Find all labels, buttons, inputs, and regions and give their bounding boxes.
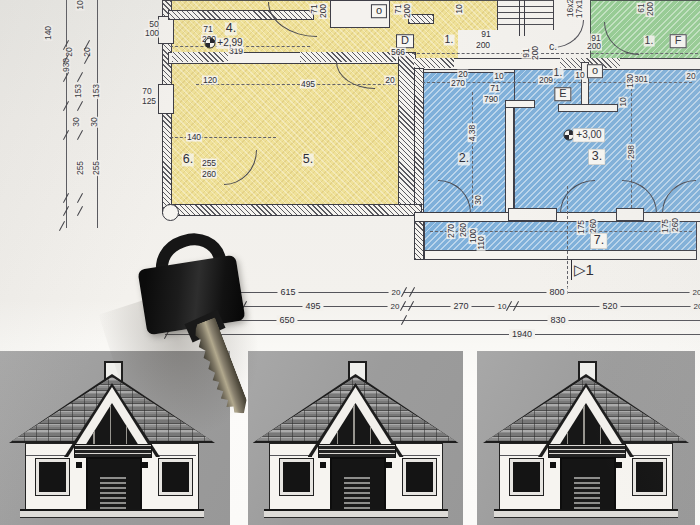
plan-label: 175 xyxy=(577,219,586,235)
plan-label: 200 xyxy=(403,3,412,19)
wall-stub-top xyxy=(408,14,434,24)
dimension-label: 20 xyxy=(691,302,700,311)
lamp-right xyxy=(616,462,622,468)
plan-label: o xyxy=(371,4,387,18)
chain-dim-label: 10 xyxy=(76,0,85,11)
window-right xyxy=(403,459,436,495)
lamp-left xyxy=(320,462,326,468)
plan-label: 200 xyxy=(475,41,491,50)
plan-label: 120 xyxy=(202,76,218,85)
chain-dim-label: 255 xyxy=(92,160,101,176)
section-marker-glyph: ▷ xyxy=(574,261,586,278)
balcony-railing xyxy=(318,444,396,458)
chain-dim-label: 140 xyxy=(44,25,53,41)
wall-yellow-bottom xyxy=(168,204,422,216)
house-panel xyxy=(248,351,463,525)
chain-dim-label: 255 xyxy=(76,160,85,176)
dimension-label: 650 xyxy=(276,315,297,325)
window-symbol xyxy=(158,16,174,44)
plan-label: 260 xyxy=(201,170,217,179)
door-leaf xyxy=(508,208,557,221)
window-left xyxy=(36,459,69,495)
plan-label: 140 xyxy=(186,133,202,142)
dimension-row: 6152080020 xyxy=(233,286,700,298)
house-panel xyxy=(0,351,230,525)
plan-label: 5. xyxy=(302,153,314,166)
level-marker-label: +3,00 xyxy=(573,129,604,142)
plan-label: 3. xyxy=(589,149,605,164)
lamp-left xyxy=(550,462,556,468)
dim-guide xyxy=(412,53,698,54)
dimension-label: 1940 xyxy=(509,329,535,339)
dim-tick xyxy=(77,101,83,111)
entry-steps xyxy=(574,477,600,509)
plan-label: 495 xyxy=(300,80,316,89)
plan-label: 20 xyxy=(685,72,696,81)
plan-label: 10 xyxy=(574,71,585,80)
plan-label: o xyxy=(587,64,603,78)
dim-chain-line xyxy=(97,0,98,228)
plan-label: 130 xyxy=(626,73,635,89)
dimension-label: 20 xyxy=(690,288,700,297)
plan-label: 100 xyxy=(144,29,160,38)
plan-label: 260 xyxy=(459,222,468,238)
plan-label: 200 xyxy=(531,45,540,61)
dimension-row: 1940 xyxy=(165,328,700,340)
lamp-right xyxy=(142,462,148,468)
plan-label: 71 xyxy=(489,84,500,93)
chain-dim-label: 30 xyxy=(90,116,99,127)
balcony-railing xyxy=(548,444,626,458)
plan-label: 70 xyxy=(141,87,152,96)
wall-hatch-seg xyxy=(172,52,228,62)
wall-terrace-bottom xyxy=(424,250,697,260)
wall-hatch-seg xyxy=(414,58,454,68)
photo-scene: ▷1 50100701254.319712001204955.1406.2552… xyxy=(0,0,700,525)
plan-label: F xyxy=(670,34,687,48)
entry-steps xyxy=(344,477,370,509)
plan-label: 110 xyxy=(477,235,486,251)
plan-label: 566 xyxy=(390,48,406,57)
dimension-label: 615 xyxy=(277,287,298,297)
section-marker-number: 1 xyxy=(586,261,594,278)
plan-label: 2. xyxy=(458,152,470,165)
room-2-blue xyxy=(422,72,516,214)
dim-tick xyxy=(77,72,83,82)
plan-label: 270 xyxy=(450,79,466,88)
entry-door xyxy=(330,457,386,513)
dimension-row: 495202701052020 xyxy=(243,300,700,312)
plan-label: 200 xyxy=(319,3,328,19)
plan-label: 17x1 xyxy=(575,0,584,19)
lamp-right xyxy=(386,462,392,468)
plan-label: 270 xyxy=(447,223,456,239)
plan-label: 20 xyxy=(384,76,395,85)
room-yellow-patch xyxy=(460,0,498,34)
plan-label: 260 xyxy=(671,217,680,233)
house-elevation xyxy=(12,359,212,519)
dim-tick xyxy=(77,193,83,203)
dim-tick xyxy=(59,221,65,231)
house-elevation xyxy=(256,359,456,519)
plan-label: 200 xyxy=(646,1,655,17)
wall-blue-left xyxy=(414,68,424,260)
plan-label: 298 xyxy=(627,144,636,160)
plan-label: 125 xyxy=(141,97,157,106)
entry-steps xyxy=(100,477,126,509)
wall-room2-room3 xyxy=(505,102,514,216)
lamp-left xyxy=(76,462,82,468)
window-symbol xyxy=(158,84,174,114)
base-strip xyxy=(494,509,678,518)
plan-label: 7. xyxy=(591,233,607,248)
window-left xyxy=(510,459,543,495)
plan-label: 10 xyxy=(455,3,464,14)
entry-door xyxy=(86,457,142,513)
chain-dim-label: 153 xyxy=(74,83,83,99)
plan-label: 175 xyxy=(661,218,670,234)
wall-hatch-seg xyxy=(300,52,396,62)
column-symbol xyxy=(162,204,179,221)
plan-label: 255 xyxy=(201,159,217,168)
plan-label: 10 xyxy=(493,72,504,81)
dimension-label: 270 xyxy=(450,301,471,311)
wall-stub-room3 xyxy=(505,100,535,108)
level-marker-label: +2,99 xyxy=(216,38,243,49)
dim-tick xyxy=(77,130,83,140)
plan-label: 4,38 xyxy=(468,124,477,143)
dimension-label: 520 xyxy=(599,301,620,311)
house-panel xyxy=(477,351,695,525)
house-elevation xyxy=(486,359,686,519)
dimension-line xyxy=(233,292,700,293)
plan-label: 4. xyxy=(225,22,237,35)
plan-label: 301 xyxy=(633,75,649,84)
window-left xyxy=(280,459,313,495)
dim-guide-vertical xyxy=(472,92,473,208)
dimension-label: 495 xyxy=(302,301,323,311)
plan-label: 91 xyxy=(480,30,491,39)
base-strip xyxy=(20,509,204,518)
plan-label: E xyxy=(554,87,571,101)
plan-label: 200 xyxy=(586,42,602,51)
dimension-label: 830 xyxy=(547,315,568,325)
level-marker-icon xyxy=(205,38,216,49)
plan-label: 71 xyxy=(202,25,213,34)
section-marker-1: ▷1 xyxy=(571,260,594,280)
wall-terrace-top xyxy=(414,212,700,222)
plan-label: 30 xyxy=(474,194,483,205)
dimension-label: 800 xyxy=(546,287,567,297)
plan-label: 6. xyxy=(182,153,194,166)
dimension-row: 650830 xyxy=(217,314,700,326)
wall-e-stub xyxy=(558,104,618,112)
plan-label: 1. xyxy=(553,67,564,78)
chain-dim-label: 30 xyxy=(72,116,81,127)
plan-label: 1. xyxy=(644,35,655,46)
plan-label: 790 xyxy=(483,95,499,104)
plan-label: 1. xyxy=(444,34,455,45)
chain-dim-label: 153 xyxy=(92,83,101,99)
balcony-railing xyxy=(74,444,152,458)
plan-label: 260 xyxy=(589,218,598,234)
window-right xyxy=(633,459,666,495)
plan-label: c. xyxy=(548,41,558,52)
dimension-line xyxy=(165,334,700,335)
plan-label: 10 xyxy=(619,96,628,107)
entry-door xyxy=(560,457,616,513)
base-strip xyxy=(264,509,448,518)
stair-rail xyxy=(519,0,525,36)
window-right xyxy=(159,459,192,495)
dim-tick xyxy=(77,206,83,216)
